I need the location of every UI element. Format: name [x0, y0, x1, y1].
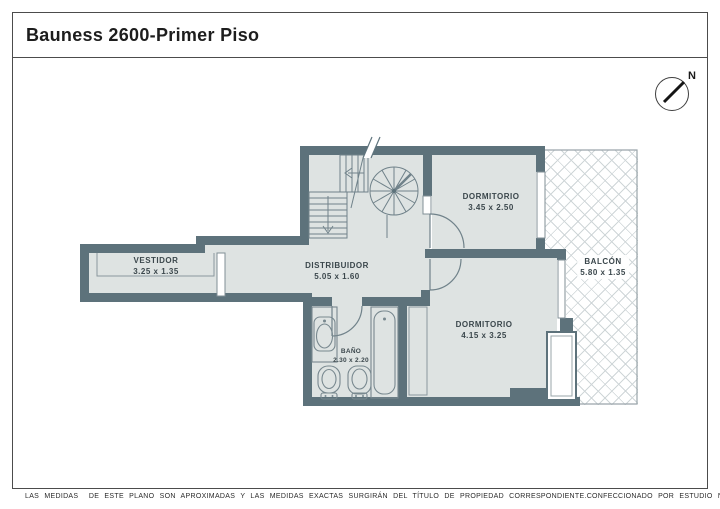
north-arrow-icon: N: [656, 70, 697, 111]
page: { "title": "Bauness 2600-Primer Piso", "…: [0, 0, 720, 509]
balcony-door: [547, 332, 576, 400]
disclaimer-text: LAS MEDIDAS DE ESTE PLANO SON APROXIMADA…: [25, 493, 587, 500]
footer: LAS MEDIDAS DE ESTE PLANO SON APROXIMADA…: [25, 493, 705, 500]
north-label: N: [688, 70, 696, 82]
floor-plan-drawing: N: [0, 0, 720, 509]
credit-text: CONFECCIONADO POR ESTUDIO NARTEX: [587, 493, 720, 500]
